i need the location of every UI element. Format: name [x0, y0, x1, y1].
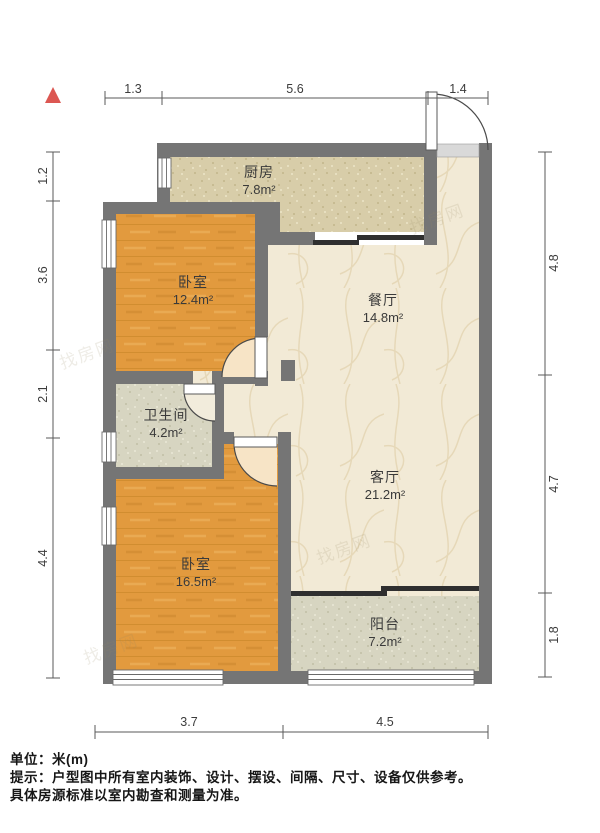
dim-left-4: 4.4	[36, 549, 50, 566]
wall-bathroom-bottom	[103, 467, 224, 479]
tip-note-line1: 提示：户型图中所有室内装饰、设计、摆设、间隔、尺寸、设备仅供参考。	[10, 766, 472, 786]
room-name: 卧室	[173, 274, 213, 292]
bedroom2-side-window	[102, 507, 116, 545]
room-label-kitchen: 厨房 7.8m²	[242, 164, 275, 198]
room-name: 客厅	[365, 469, 405, 487]
room-label-dining: 餐厅 14.8m²	[363, 292, 403, 326]
kitchen-floor	[170, 157, 424, 202]
dim-left-1: 1.2	[36, 167, 50, 184]
sliding-panel	[357, 235, 424, 240]
dim-top-2: 5.6	[286, 82, 303, 96]
wall-hall-bottom-stub	[212, 432, 234, 444]
room-label-balcony: 阳台 7.2m²	[368, 616, 401, 650]
room-name: 厨房	[242, 164, 275, 182]
kitchen-window	[158, 158, 171, 188]
bedroom2-door-leaf	[234, 437, 277, 447]
room-area: 21.2m²	[365, 487, 405, 503]
sliding-panel	[313, 240, 359, 245]
room-area: 7.8m²	[242, 182, 275, 198]
wall-kitchen-right	[424, 143, 437, 245]
room-name: 餐厅	[363, 292, 403, 310]
wall-bedroom1-top	[103, 202, 280, 214]
room-area: 16.5m²	[176, 574, 216, 590]
room-label-living: 客厅 21.2m²	[365, 469, 405, 503]
room-area: 14.8m²	[363, 310, 403, 326]
wall-kitchen-bottom	[268, 232, 315, 245]
dim-left-3: 2.1	[36, 385, 50, 402]
room-area: 12.4m²	[173, 292, 213, 308]
sliding-panel	[291, 591, 385, 596]
dim-right-2: 4.7	[547, 475, 561, 492]
dim-top-3: 1.4	[449, 82, 466, 96]
room-area: 7.2m²	[368, 634, 401, 650]
dim-bottom-1: 3.7	[180, 715, 197, 729]
room-name: 卧室	[176, 556, 216, 574]
room-area: 4.2m²	[144, 425, 189, 441]
bedroom2-bottom-window	[113, 670, 223, 685]
kitchen-sliding-door	[313, 232, 424, 245]
dim-right-1: 4.8	[547, 254, 561, 271]
bedroom1-door-leaf	[255, 337, 267, 378]
north-compass-icon	[45, 87, 61, 103]
dim-bottom-2: 4.5	[376, 715, 393, 729]
wall-bedroom2-right	[278, 432, 291, 671]
sliding-panel	[383, 586, 479, 591]
kitchen-floor-lower	[280, 202, 424, 232]
room-label-bedroom2: 卧室 16.5m²	[176, 556, 216, 590]
entrance-threshold	[437, 144, 479, 157]
bathroom-window	[102, 432, 116, 462]
dim-left-2: 3.6	[36, 266, 50, 283]
floorplan-page: { "title": "户型图", "rooms": [ {"id": "kit…	[0, 0, 600, 833]
bathroom-door-leaf	[184, 384, 215, 394]
room-label-bathroom: 卫生间 4.2m²	[144, 407, 189, 441]
entrance-door-arc	[432, 94, 488, 150]
dim-right-3: 1.8	[547, 626, 561, 643]
room-name: 阳台	[368, 616, 401, 634]
dim-top-1: 1.3	[124, 82, 141, 96]
wall-right	[479, 143, 492, 684]
room-name: 卫生间	[144, 407, 189, 425]
column	[281, 360, 295, 381]
balcony-window	[308, 670, 474, 685]
room-label-bedroom1: 卧室 12.4m²	[173, 274, 213, 308]
sliding-panel-joint	[381, 586, 387, 596]
tip-note-line2: 具体房源标准以室内勘查和测量为准。	[10, 784, 248, 804]
wall-top	[157, 143, 427, 157]
floorplan-canvas	[0, 0, 600, 833]
wall-bedroom1-bottom	[103, 371, 193, 384]
bedroom1-window	[102, 220, 116, 268]
wall-bedroom1-right	[255, 214, 268, 337]
unit-note: 单位：米(m)	[10, 748, 89, 768]
